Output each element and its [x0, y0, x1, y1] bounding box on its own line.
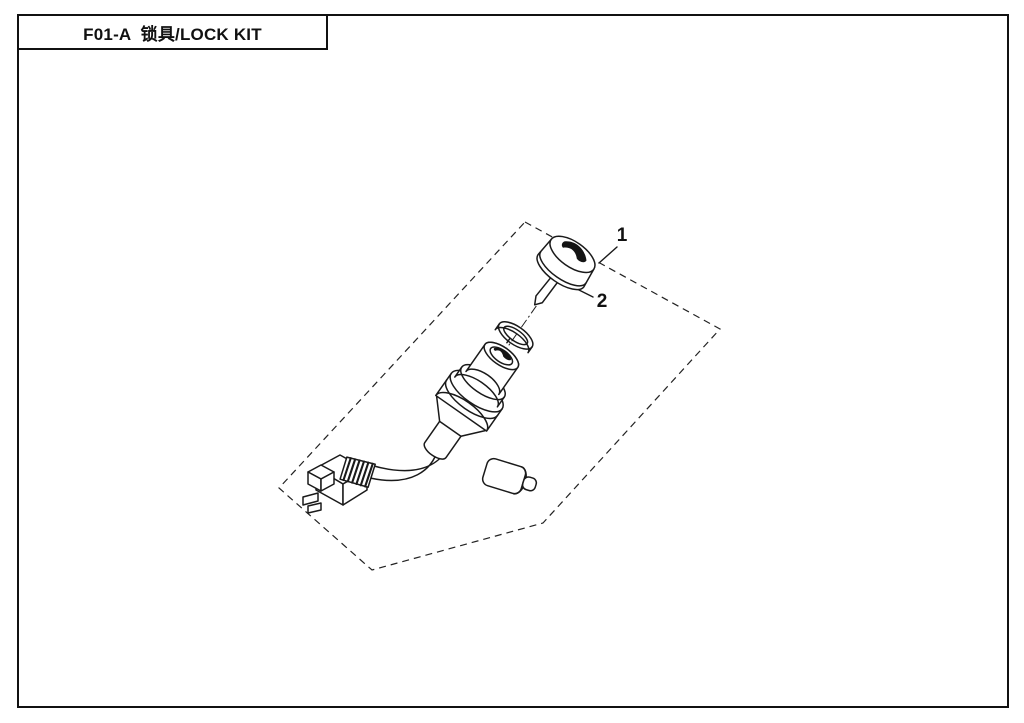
lock-cylinder-body [407, 331, 532, 473]
exploded-view-diagram: 1 2 [0, 0, 1024, 723]
part-label-1: 1 [617, 225, 628, 246]
lock-assembly [407, 226, 605, 472]
cable-lower-edge [370, 449, 438, 480]
plug-body [481, 457, 527, 495]
connector-terminal-1 [303, 493, 318, 505]
blind-plug-part [481, 457, 540, 499]
connector-terminal-2 [308, 503, 321, 513]
key-cap [513, 228, 602, 322]
title-block: F01-A 锁具/LOCK KIT [17, 14, 328, 50]
leader-line-1 [599, 247, 617, 263]
catalog-page: F01-A 锁具/LOCK KIT 1 2 [0, 0, 1024, 723]
part-label-2: 2 [597, 291, 608, 312]
page-title: F01-A 锁具/LOCK KIT [83, 20, 262, 45]
